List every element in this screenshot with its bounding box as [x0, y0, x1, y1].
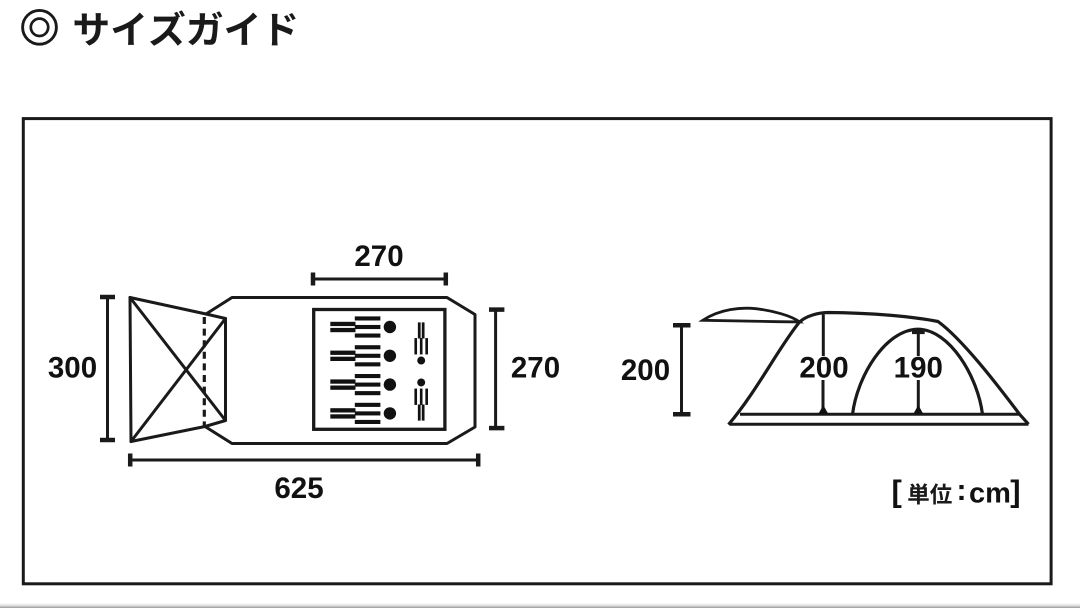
svg-text:190: 190: [894, 352, 943, 385]
svg-text:200: 200: [799, 352, 848, 385]
svg-text:200: 200: [621, 354, 670, 387]
svg-text:300: 300: [48, 351, 97, 384]
svg-text:270: 270: [354, 240, 403, 273]
svg-text:[: [: [892, 474, 902, 509]
svg-text:625: 625: [274, 472, 323, 505]
svg-text:270: 270: [511, 352, 560, 385]
svg-text:cm: cm: [969, 478, 1011, 510]
svg-text::: :: [957, 474, 967, 507]
svg-text:]: ]: [1010, 474, 1020, 509]
